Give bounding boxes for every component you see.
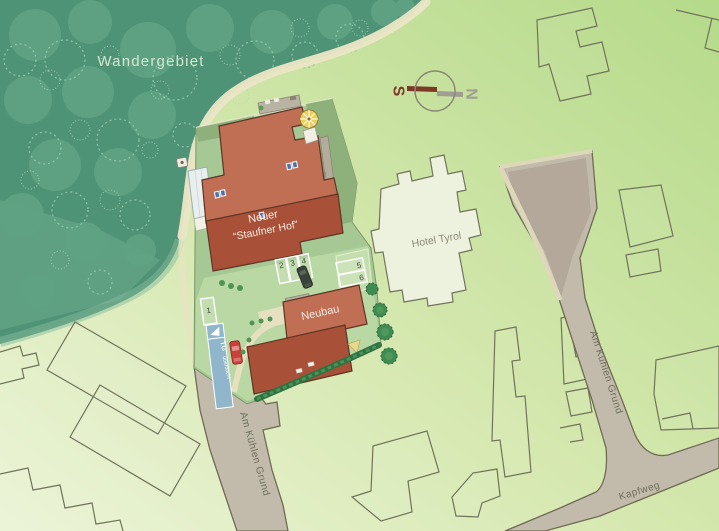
compass-north-label: N (463, 88, 480, 100)
parking-spot-1: 1 (200, 297, 216, 325)
garden-table (176, 157, 188, 168)
compass-south-label: S (390, 86, 407, 97)
parking-row-56: 5 6 (336, 258, 367, 287)
site-plan-page: Am Kühlen Grund Kapfweg Hotel Tyrol Am K… (0, 0, 719, 531)
compass-needle-south (407, 86, 437, 92)
parasol (300, 110, 318, 128)
region-label: Wandergebiet (97, 53, 204, 70)
compass-needle-north (437, 91, 463, 97)
site-plan-map: Am Kühlen Grund Kapfweg Hotel Tyrol Am K… (0, 0, 719, 531)
